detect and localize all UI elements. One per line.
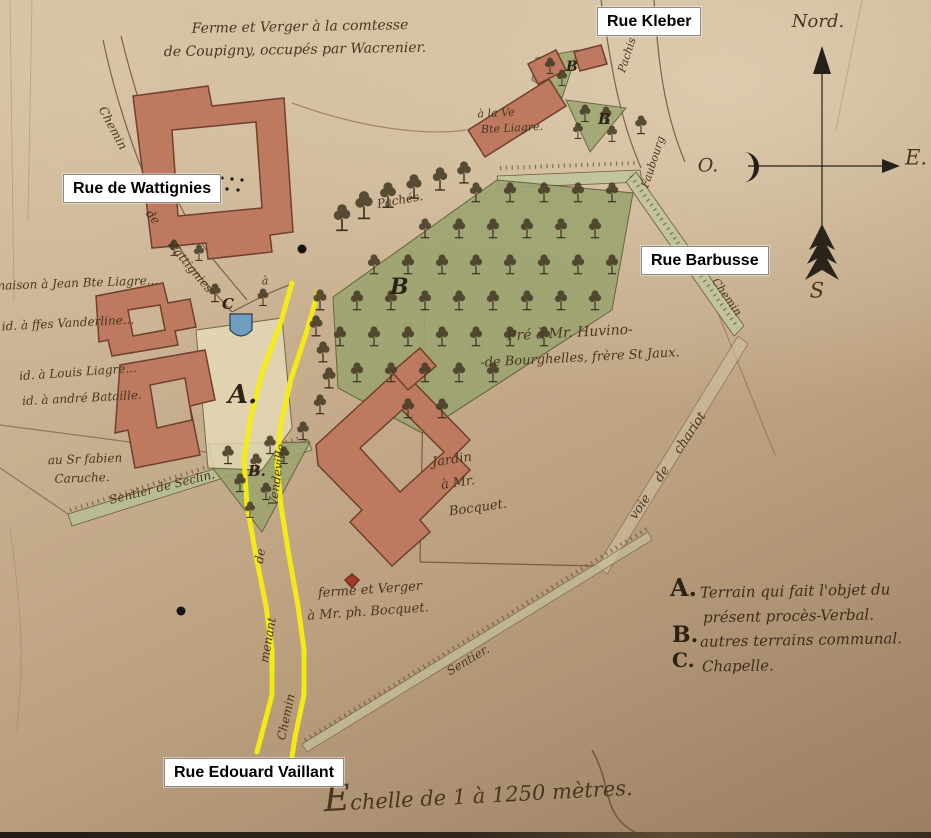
note-veuve-liagre-1: à la Ve [477,107,515,120]
historical-map-canvas[interactable]: Ferme et Verger à la comtesse de Coupign… [0,0,931,838]
legend-key-c: C. [672,650,695,670]
street-label-rue-kleber: Rue Kleber [597,7,701,36]
marker-terrain-a: A. [228,382,257,408]
marker-chapel-c: C [222,297,234,312]
compass-west-label: O. [698,157,719,176]
note-fabien-caruche-2: Caruche. [54,471,110,485]
map-drawing [0,0,931,838]
street-label-rue-barbusse: Rue Barbusse [641,246,769,275]
compass-feather-south [805,224,839,280]
farm-coupigny [133,86,293,259]
legend-text-b: autres terrains communal. [700,629,902,651]
photo-bottom-edge [0,832,931,838]
legend-text-a1: Terrain qui fait l'objet du [700,580,891,601]
compass-east-label: E. [905,148,927,169]
marker-triangle-b: B. [248,464,266,479]
chapel-c-shape [230,314,252,336]
marker-kleber-b2: B [598,112,611,127]
crescent-west-icon [744,152,759,182]
legend-key-b: B. [672,624,698,646]
kleber-green-2 [566,100,626,152]
legend-text-a2: présent procès-Verbal. [703,606,874,627]
compass-north-label: Nord. [792,13,844,31]
note-ferme-coupigny-1: Ferme et Verger à la comtesse [192,18,409,36]
note-fabien-caruche-1: au Sr fabien [48,452,123,467]
note-chemin-de: de [253,548,267,565]
legend-key-a: A. [670,576,697,600]
marker-orchard-b: B [390,276,409,298]
building-kleber-small-2 [574,45,607,71]
compass-south-label: S [810,281,824,302]
note-veuve-liagre-2: Bte Liagre. [481,121,544,135]
legend-text-c: Chapelle. [702,656,774,675]
street-label-rue-edouard-vaillant: Rue Edouard Vaillant [164,758,344,787]
marker-kleber-b1: B [566,60,578,74]
street-label-rue-de-wattignies: Rue de Wattignies [63,174,221,203]
note-a-small: à [262,276,269,287]
compass-rose [744,46,900,280]
